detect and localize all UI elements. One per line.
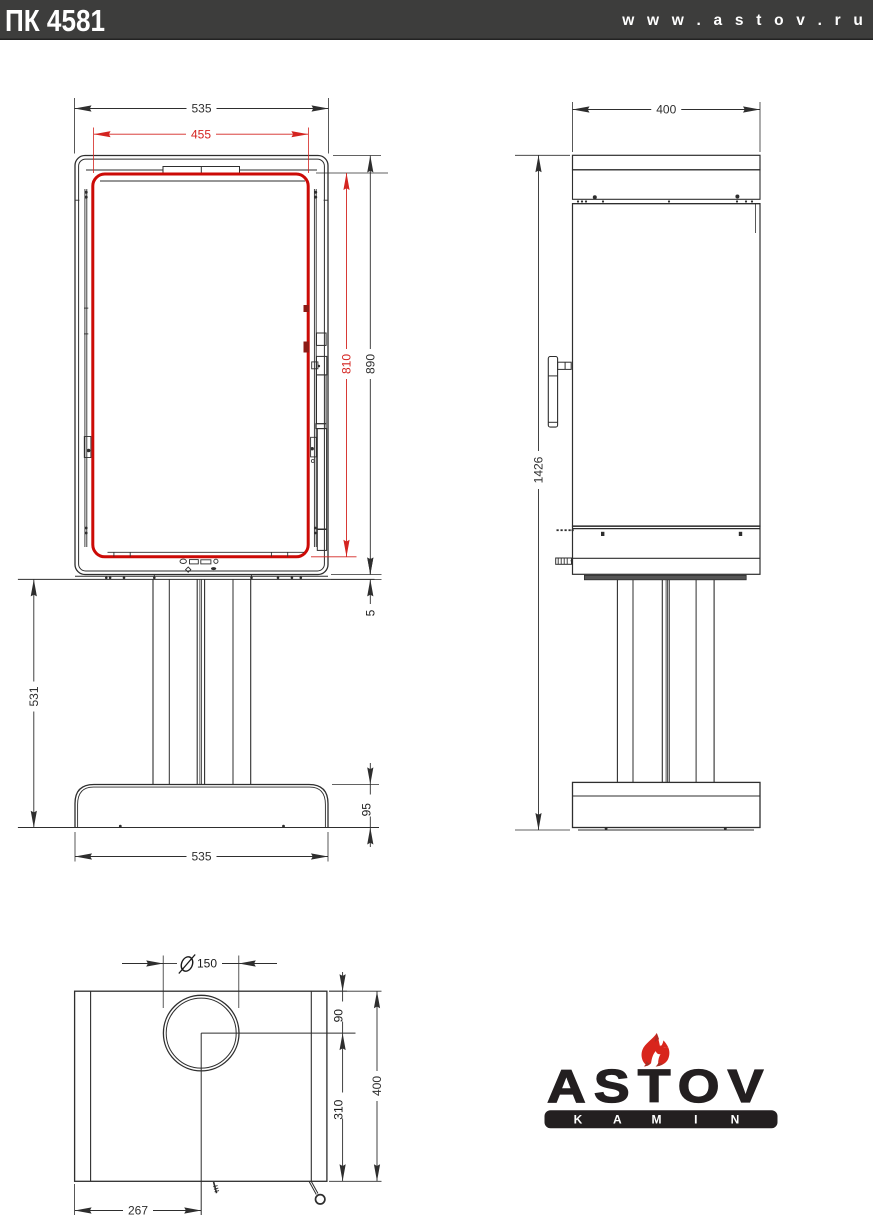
svg-text:400: 400	[656, 103, 676, 117]
svg-text:535: 535	[191, 850, 211, 864]
svg-text:ПК 4581: ПК 4581	[5, 4, 105, 38]
svg-text:5: 5	[364, 609, 378, 616]
svg-text:I: I	[694, 1112, 697, 1126]
svg-text:455: 455	[191, 127, 211, 141]
svg-text:w w w . a s t o v . r u: w w w . a s t o v . r u	[621, 12, 867, 29]
svg-text:890: 890	[364, 354, 378, 374]
svg-text:ASTOV: ASTOV	[547, 1060, 772, 1112]
svg-text:95: 95	[359, 803, 373, 817]
svg-text:267: 267	[128, 1204, 148, 1218]
svg-text:1426: 1426	[532, 456, 546, 483]
svg-text:150: 150	[197, 957, 217, 971]
svg-text:400: 400	[370, 1076, 384, 1096]
svg-text:810: 810	[340, 354, 354, 374]
svg-text:90: 90	[332, 1009, 346, 1023]
svg-text:M: M	[652, 1112, 662, 1126]
svg-text:310: 310	[332, 1099, 346, 1119]
svg-text:A: A	[613, 1112, 622, 1126]
svg-text:K: K	[574, 1112, 583, 1126]
svg-text:535: 535	[191, 102, 211, 116]
svg-text:N: N	[731, 1112, 740, 1126]
svg-text:531: 531	[27, 686, 41, 706]
